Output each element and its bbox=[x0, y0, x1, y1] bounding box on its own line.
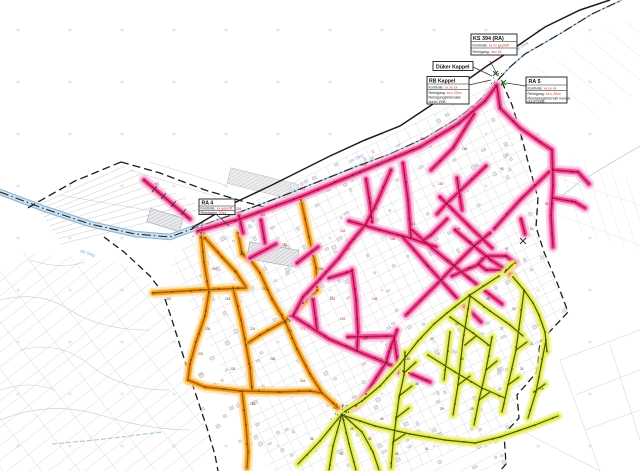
svg-text:55: 55 bbox=[310, 437, 314, 441]
svg-text:48: 48 bbox=[350, 427, 354, 431]
svg-text:33: 33 bbox=[455, 322, 459, 326]
svg-text:152: 152 bbox=[438, 182, 444, 186]
svg-text:Reinigung: xx.x.20xx: Reinigung: xx.x.20xx bbox=[429, 91, 462, 95]
svg-text:287: 287 bbox=[362, 163, 368, 167]
svg-text:224: 224 bbox=[250, 327, 256, 331]
svg-text:201: 201 bbox=[166, 297, 172, 301]
svg-text:238: 238 bbox=[270, 357, 276, 361]
svg-text:Kontrolle: xx.geprüft: Kontrolle: xx.geprüft bbox=[201, 207, 233, 211]
svg-text:252: 252 bbox=[250, 402, 256, 406]
svg-text:148: 148 bbox=[372, 297, 378, 301]
svg-text:44: 44 bbox=[380, 417, 384, 421]
svg-text:244: 244 bbox=[300, 379, 306, 383]
svg-text:23: 23 bbox=[512, 307, 516, 311]
svg-text:88: 88 bbox=[545, 202, 549, 206]
svg-text:124: 124 bbox=[340, 229, 346, 233]
svg-text:99: 99 bbox=[480, 257, 484, 261]
svg-text:RB Kappel: RB Kappel bbox=[429, 79, 456, 85]
svg-text:92: 92 bbox=[520, 137, 524, 141]
svg-text:84: 84 bbox=[530, 227, 534, 231]
svg-text:27: 27 bbox=[500, 327, 504, 331]
svg-text:133: 133 bbox=[372, 207, 378, 211]
svg-text:141: 141 bbox=[410, 222, 416, 226]
svg-text:218: 218 bbox=[225, 297, 231, 301]
svg-text:Kontrolle: xx.xx geprüft: Kontrolle: xx.xx geprüft bbox=[473, 44, 510, 48]
svg-text:312: 312 bbox=[300, 187, 306, 191]
svg-text:KS 394 (RA): KS 394 (RA) bbox=[473, 36, 504, 42]
svg-text:41: 41 bbox=[425, 447, 429, 451]
svg-text:246: 246 bbox=[310, 297, 316, 301]
svg-text:35: 35 bbox=[460, 357, 464, 361]
svg-text:durch ZKB: durch ZKB bbox=[429, 100, 447, 104]
svg-text:166: 166 bbox=[462, 147, 468, 151]
svg-text:KS: KS bbox=[155, 182, 159, 186]
svg-text:39: 39 bbox=[440, 407, 444, 411]
svg-text:29: 29 bbox=[470, 407, 474, 411]
svg-text:171: 171 bbox=[300, 327, 306, 331]
svg-text:118: 118 bbox=[345, 247, 350, 251]
svg-text:Reinigung: 20xx: Reinigung: 20xx bbox=[201, 211, 227, 215]
svg-text:36: 36 bbox=[415, 382, 419, 386]
svg-text:Kontrolle: xx.xx.xx: Kontrolle: xx.xx.xx bbox=[528, 86, 557, 90]
svg-text:241: 241 bbox=[470, 105, 476, 109]
svg-text:294: 294 bbox=[236, 207, 242, 211]
svg-text:24: 24 bbox=[520, 367, 524, 371]
svg-text:221: 221 bbox=[287, 329, 293, 333]
svg-text:210: 210 bbox=[212, 267, 218, 271]
svg-text:46: 46 bbox=[395, 452, 399, 456]
svg-text:RA 4: RA 4 bbox=[202, 201, 214, 207]
svg-text:durch ZKB: durch ZKB bbox=[528, 100, 546, 104]
svg-text:248: 248 bbox=[318, 267, 324, 271]
svg-text:52: 52 bbox=[340, 452, 344, 456]
svg-text:231: 231 bbox=[198, 352, 204, 356]
svg-text:158: 158 bbox=[390, 342, 396, 346]
svg-text:215: 215 bbox=[262, 287, 268, 291]
svg-text:142: 142 bbox=[330, 297, 336, 301]
svg-text:81: 81 bbox=[505, 247, 509, 251]
svg-text:234: 234 bbox=[205, 327, 211, 331]
svg-text:164: 164 bbox=[405, 357, 411, 361]
svg-text:126: 126 bbox=[390, 237, 396, 241]
svg-text:31: 31 bbox=[430, 337, 434, 341]
svg-text:22: 22 bbox=[498, 387, 502, 391]
svg-text:25: 25 bbox=[486, 297, 490, 301]
svg-text:265: 265 bbox=[420, 137, 426, 141]
svg-text:Kontrolle: xx.xx.xx: Kontrolle: xx.xx.xx bbox=[429, 85, 458, 89]
svg-text:288: 288 bbox=[282, 243, 288, 247]
svg-text:49: 49 bbox=[368, 437, 372, 441]
svg-text:302: 302 bbox=[260, 213, 266, 217]
svg-text:206: 206 bbox=[240, 252, 246, 256]
svg-text:21: 21 bbox=[530, 342, 534, 346]
svg-text:155: 155 bbox=[362, 337, 368, 341]
svg-text:19: 19 bbox=[540, 387, 544, 391]
svg-text:105: 105 bbox=[455, 227, 461, 231]
svg-text:Reinigung: Jun 15: Reinigung: Jun 15 bbox=[473, 50, 502, 54]
svg-text:228: 228 bbox=[230, 367, 236, 371]
svg-text:Düker Kappel: Düker Kappel bbox=[436, 64, 470, 70]
svg-text:RA 5: RA 5 bbox=[529, 79, 541, 85]
svg-text:151: 151 bbox=[340, 317, 346, 321]
svg-text:95: 95 bbox=[500, 167, 504, 171]
svg-text:109: 109 bbox=[446, 259, 452, 263]
